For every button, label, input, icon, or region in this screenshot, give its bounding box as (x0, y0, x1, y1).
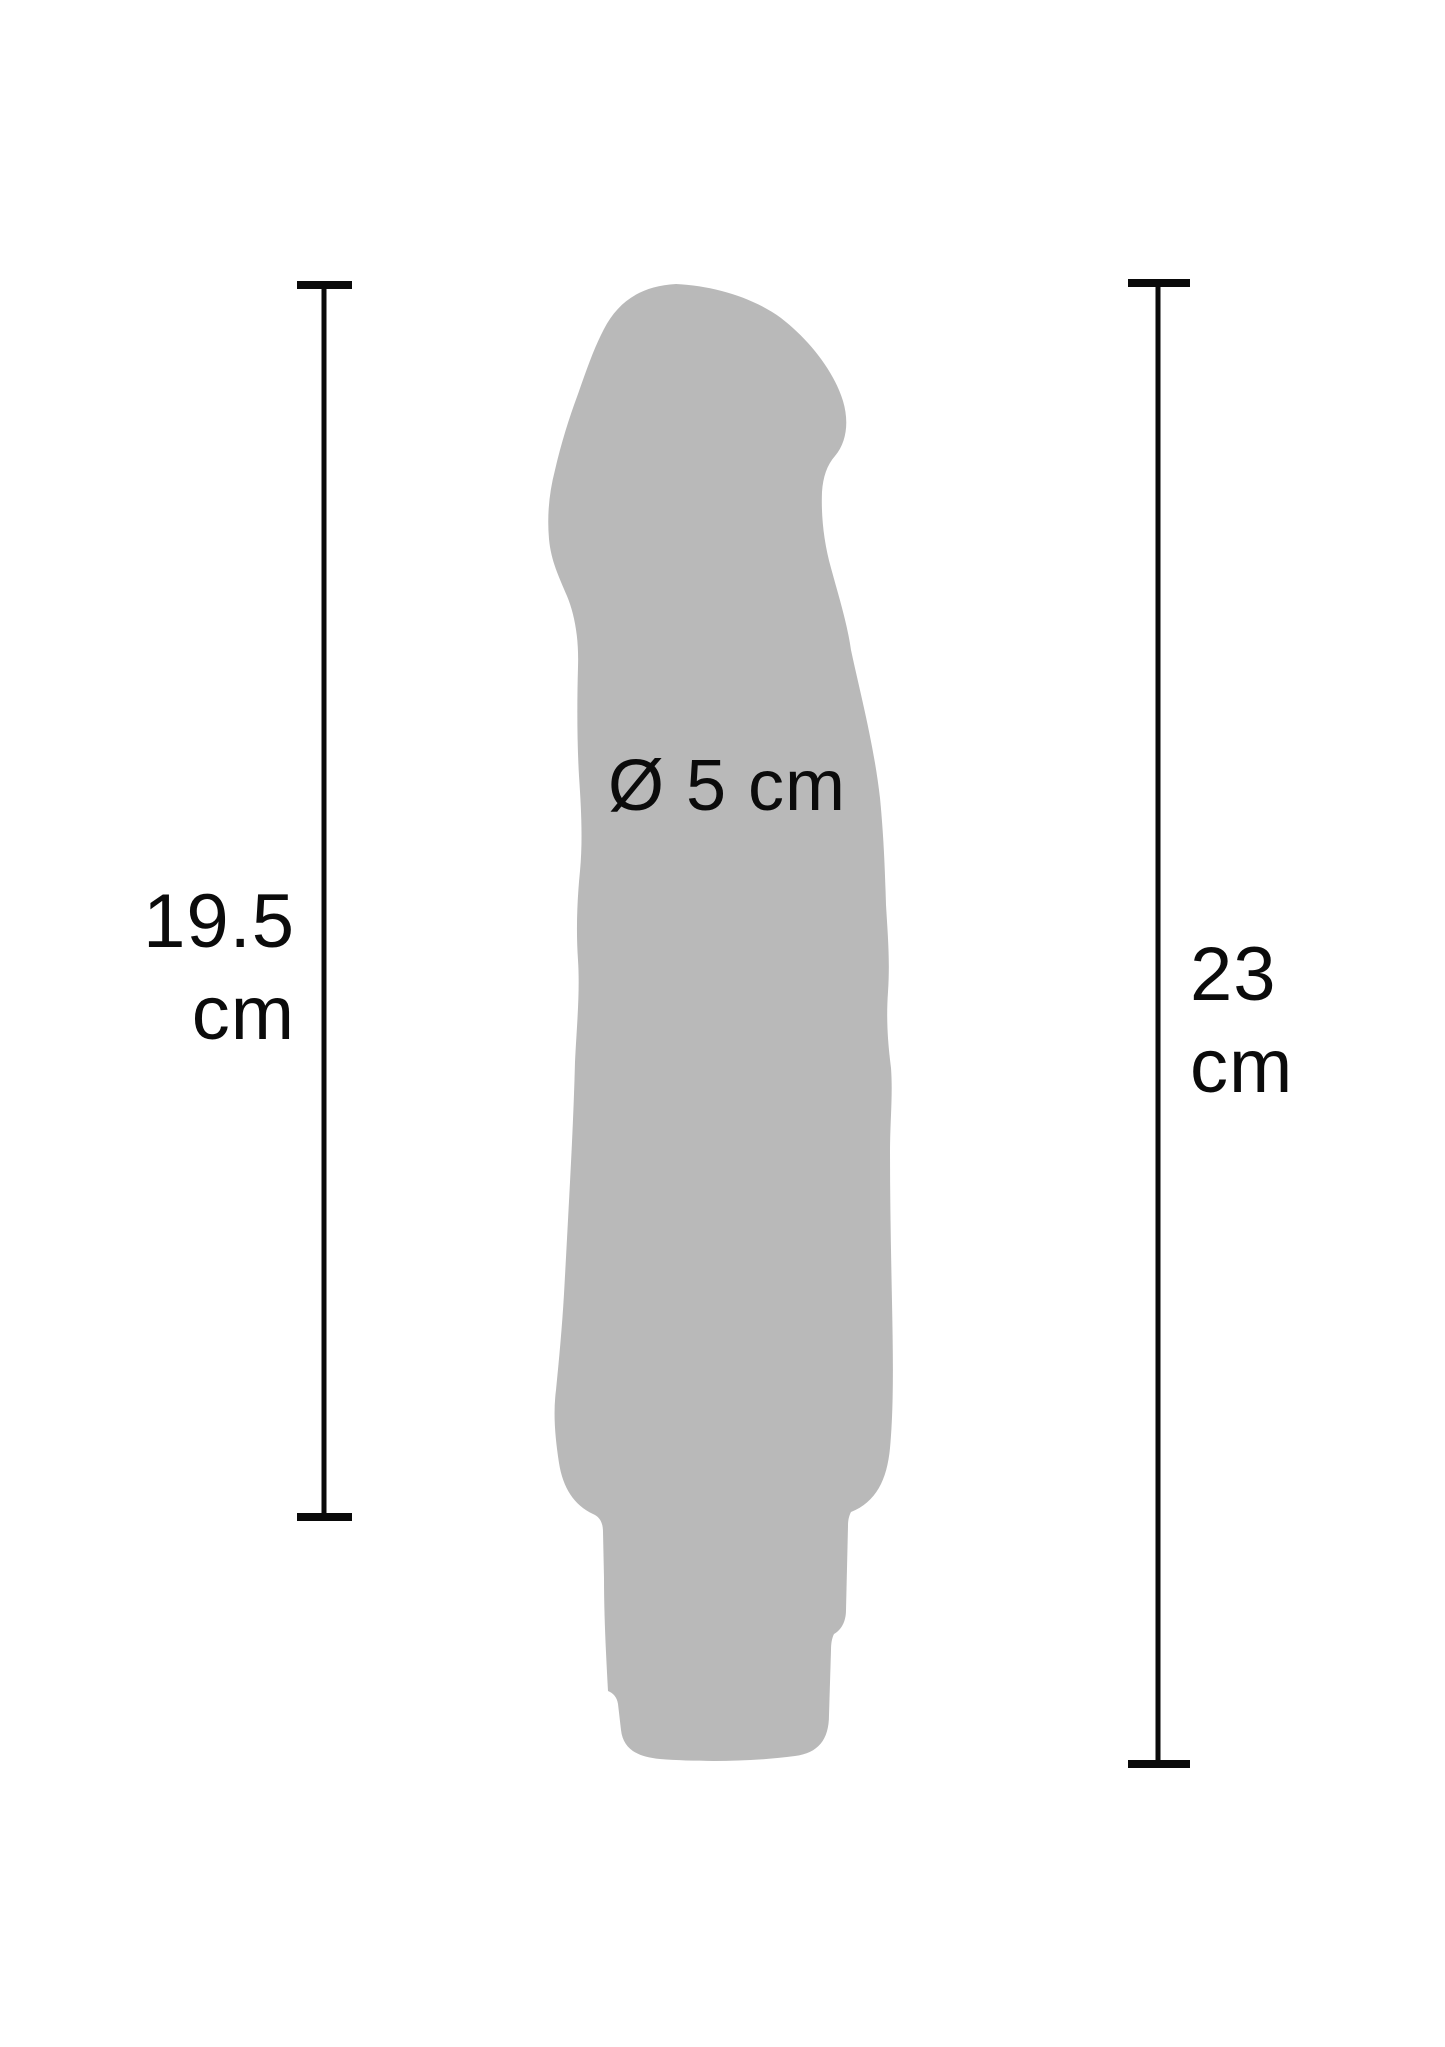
right-length-value: 23 (1190, 929, 1293, 1021)
product-silhouette (548, 284, 893, 1761)
left-length-value: 19.5 (143, 876, 295, 968)
left-length-unit: cm (143, 968, 295, 1060)
right-dimension-line (1128, 283, 1190, 1764)
diameter-label: Ø 5 cm (608, 743, 846, 829)
left-dimension-line (297, 285, 352, 1517)
right-length-unit: cm (1190, 1021, 1293, 1113)
left-length-label: 19.5 cm (143, 876, 295, 1060)
right-length-label: 23 cm (1190, 929, 1293, 1113)
dimension-diagram: 19.5 cm 23 cm Ø 5 cm (0, 0, 1445, 2047)
